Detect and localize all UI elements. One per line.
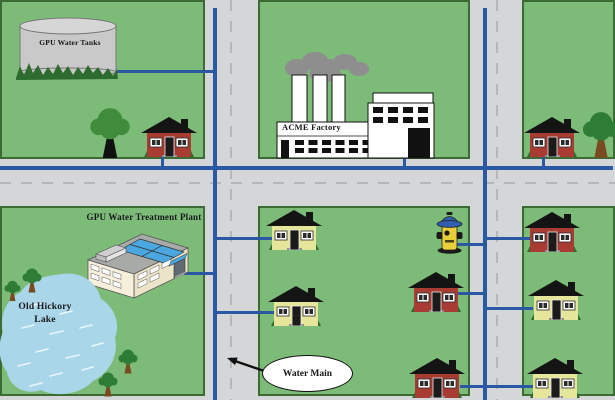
water-tank-label: GPU Water Tanks — [28, 39, 112, 48]
water-main-east — [483, 8, 487, 400]
fire-hydrant-icon — [436, 211, 463, 254]
house-icon-yellow — [528, 278, 584, 320]
house-icon-red — [141, 115, 197, 157]
pipe-houses-bottom — [460, 385, 536, 388]
road-centerline-west — [230, 0, 232, 400]
house-icon-red — [524, 210, 580, 252]
house-icon-red — [409, 356, 465, 398]
road-centerline-east — [496, 0, 498, 400]
water-main-west — [213, 8, 217, 400]
lake-label: Old Hickory Lake — [18, 301, 72, 327]
water-main-callout: Water Main — [262, 355, 353, 392]
tree-icon — [98, 371, 118, 397]
treatment-plant-label: GPU Water Treatment Plant — [80, 212, 208, 222]
factory-building — [273, 48, 445, 160]
factory-label: ACME Factory — [282, 123, 392, 133]
house-icon-yellow — [266, 208, 322, 250]
road-centerline-horizontal — [0, 182, 615, 184]
house-icon-red — [408, 270, 464, 312]
tree-icon — [118, 348, 138, 374]
tree-icon — [78, 106, 142, 158]
house-icon-red — [524, 115, 580, 157]
pipe-house-right-yellow-1 — [485, 307, 533, 310]
water-system-diagram: GPU Water Tanks ACME Factory GPU Water T… — [0, 0, 615, 400]
tree-icon — [4, 278, 21, 303]
house-icon-yellow — [268, 284, 324, 326]
water-main-label: Water Main — [283, 369, 332, 379]
house-icon-yellow — [527, 356, 583, 398]
water-main-horizontal — [0, 166, 613, 170]
smokestacks — [292, 75, 345, 122]
tree-icon — [22, 264, 42, 296]
pipe-water-tank — [110, 70, 216, 73]
tree-icon — [582, 110, 615, 158]
